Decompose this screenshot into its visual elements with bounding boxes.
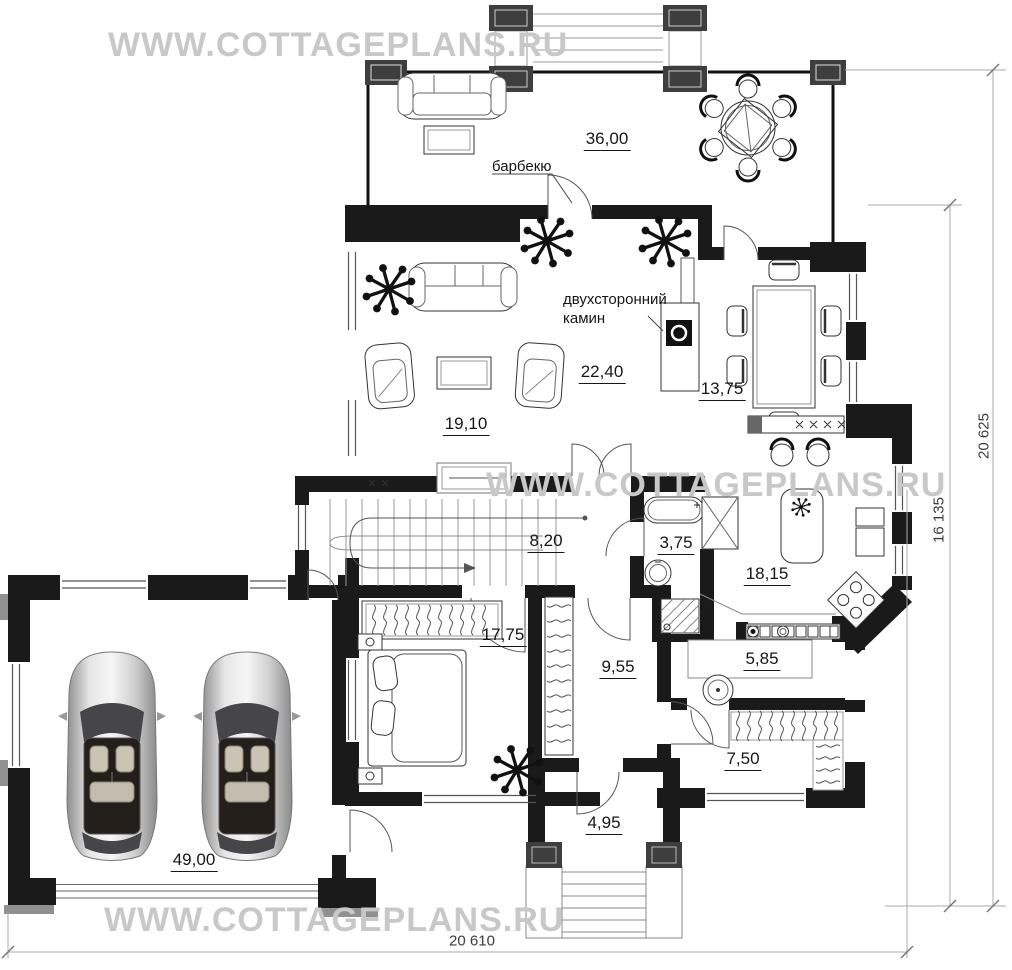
dimension-total-width: 20 610	[449, 933, 495, 950]
room-area-label-stair-hall: 8,20	[527, 531, 564, 553]
living-room-furniture	[364, 263, 565, 410]
room-area-label-bathroom: 3,75	[657, 533, 694, 555]
room-area-label-kitchen: 18,15	[744, 564, 791, 586]
room-area-label-dining: 13,75	[699, 379, 746, 401]
hallway-wardrobe	[545, 597, 573, 755]
terrace-round-table	[697, 75, 800, 181]
bar-counter	[748, 416, 845, 466]
floor-plan-page: WWW.COTTAGEPLANS.RU WWW.COTTAGEPLANS.RU …	[0, 0, 1012, 970]
terrace-sofa	[398, 73, 506, 119]
watermark-middle: WWW.COTTAGEPLANS.RU	[486, 466, 946, 505]
watermark-bottom: WWW.COTTAGEPLANS.RU	[104, 901, 564, 940]
room-area-label-sitting: 19,10	[443, 414, 490, 436]
fireplace-label-line1: двухсторонний	[563, 290, 667, 309]
barbecue-label: барбекю	[492, 157, 552, 176]
room-area-label-living: 22,40	[579, 362, 626, 384]
kitchen-counter-row	[746, 624, 840, 639]
terrace-coffee-table	[424, 126, 474, 154]
room-area-label-hallway: 9,55	[599, 657, 636, 679]
room-area-label-wardrobe: 7,50	[724, 749, 761, 771]
watermark-top: WWW.COTTAGEPLANS.RU	[108, 26, 568, 65]
room-area-label-utility: 5,85	[743, 649, 780, 671]
fireplace-label: двухсторонний камин	[563, 290, 667, 328]
fireplace-label-line2: камин	[563, 309, 667, 328]
dimension-outer-height: 20 625	[976, 413, 993, 459]
leader-lines	[492, 174, 572, 203]
dining-table-set	[727, 260, 841, 432]
room-area-label-bedroom: 17,75	[480, 625, 527, 647]
room-area-label-garage: 49,00	[171, 850, 218, 872]
shower	[661, 599, 699, 633]
dimension-inner-height: 16 135	[931, 497, 948, 543]
room-area-label-terrace: 36,00	[584, 129, 631, 151]
room-area-label-entrance: 4,95	[585, 813, 622, 835]
